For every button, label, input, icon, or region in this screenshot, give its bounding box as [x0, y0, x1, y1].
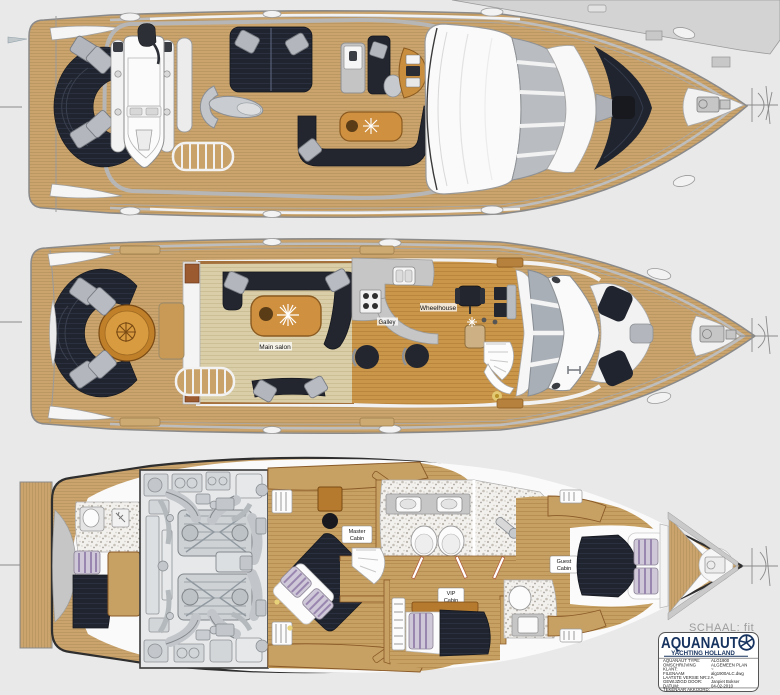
svg-text:Galley: Galley [378, 320, 395, 326]
svg-text:Wheelhouse: Wheelhouse [420, 305, 457, 312]
svg-text:Main salon: Main salon [259, 344, 291, 351]
svg-text:Cabin: Cabin [350, 536, 364, 542]
svg-text:Guest: Guest [557, 559, 572, 565]
svg-text:Cabin: Cabin [557, 566, 571, 572]
svg-text:ALGEMEEN PLAN: ALGEMEEN PLAN [711, 662, 747, 667]
svg-text:Master: Master [349, 529, 366, 535]
svg-text:VIP: VIP [447, 591, 456, 597]
svg-text:TEKENAAR AKKOORD:: TEKENAAR AKKOORD: [663, 687, 710, 692]
svg-text:alg1900ALC.dwg: alg1900ALC.dwg [711, 671, 744, 676]
